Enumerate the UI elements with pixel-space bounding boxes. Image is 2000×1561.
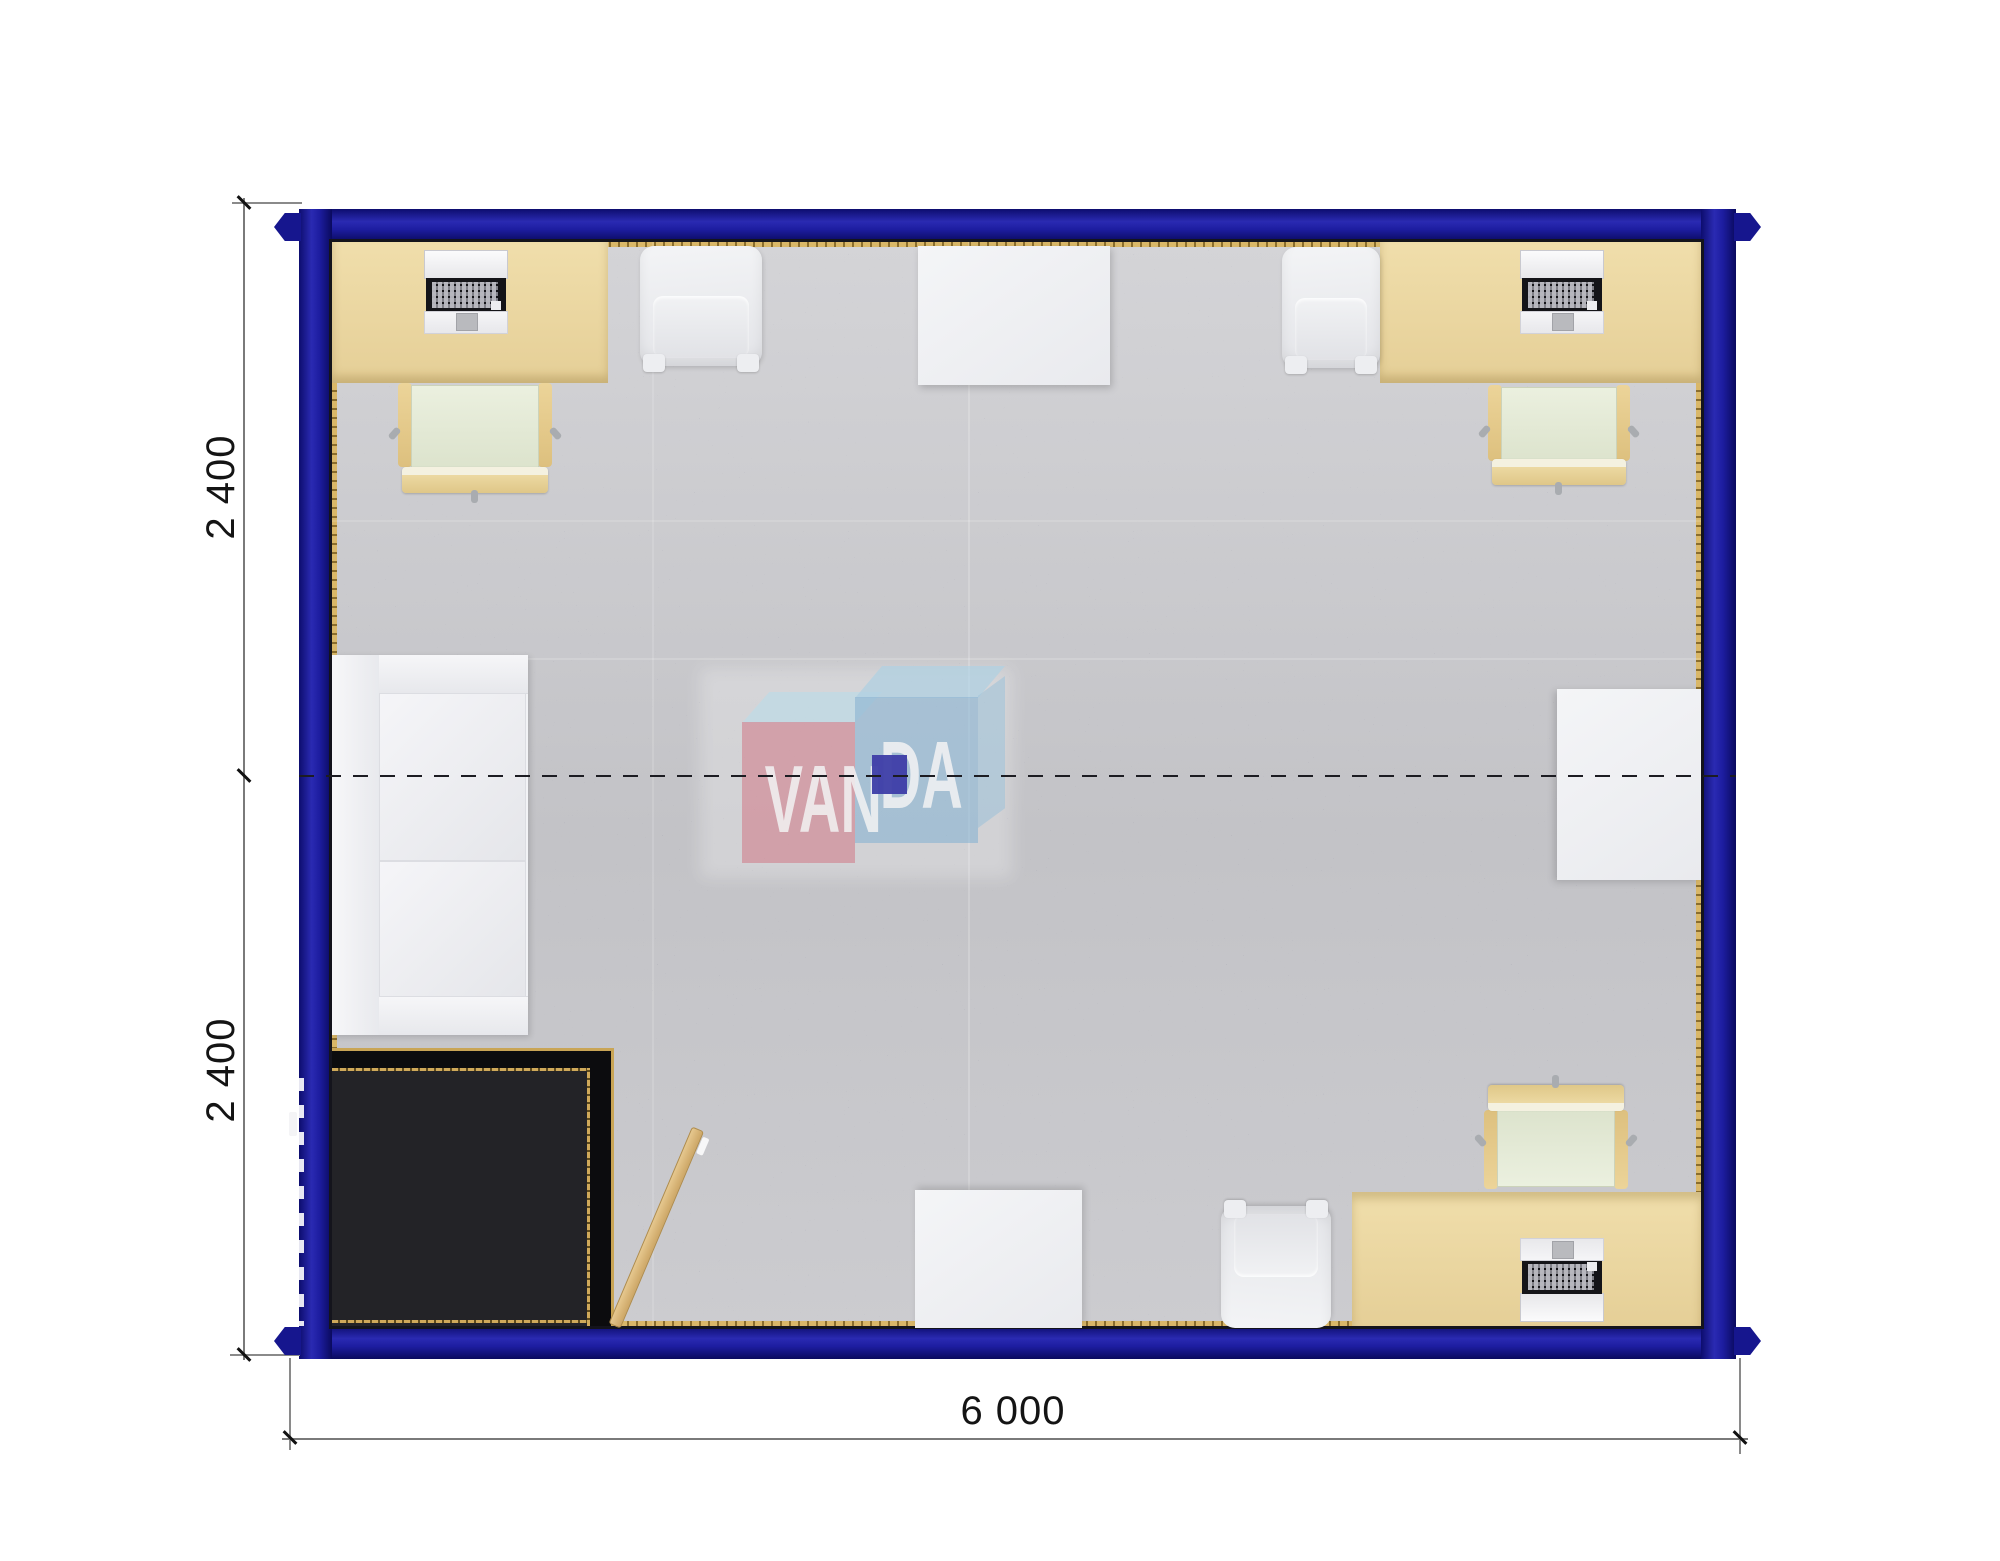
sofa xyxy=(332,655,528,1035)
carpet-seam xyxy=(332,658,1701,660)
keyboard xyxy=(1522,278,1602,313)
carpet-seam xyxy=(332,520,1701,522)
dimension-label-length: 6 000 xyxy=(913,1389,1113,1433)
office-chair-top-left xyxy=(398,383,552,493)
caster xyxy=(1552,1075,1559,1088)
table-bottom-center xyxy=(915,1190,1082,1328)
armchair-cushion xyxy=(1295,298,1367,360)
armrest xyxy=(538,383,552,467)
chair-seat xyxy=(1501,387,1617,469)
computer-base xyxy=(424,311,508,334)
corner-casting-bottom-right xyxy=(1734,1327,1761,1355)
table-right-wall xyxy=(1557,689,1701,880)
sofa-armrest-bottom xyxy=(379,996,528,1035)
armchair-bottom xyxy=(1221,1206,1331,1328)
sofa-cushion xyxy=(379,861,526,997)
chair-seat xyxy=(411,385,539,475)
keyboard-notch xyxy=(1587,301,1597,310)
corner-casting-top-right xyxy=(1734,213,1761,241)
armchair-top-left xyxy=(640,246,762,366)
touchpad xyxy=(1552,313,1574,331)
touchpad xyxy=(1552,1241,1574,1259)
desk-bottom-right xyxy=(1352,1192,1701,1326)
watermark-blue-cube-side xyxy=(978,676,1005,828)
computer-base xyxy=(1520,311,1604,334)
carpet-seam xyxy=(652,242,654,1326)
keyboard-notch xyxy=(1587,1262,1597,1271)
computer-icon xyxy=(424,250,508,334)
dimension-line-horizontal xyxy=(282,1438,1748,1440)
computer-icon xyxy=(1520,1238,1604,1322)
sofa-backrest xyxy=(332,655,381,1035)
armrest xyxy=(1614,1110,1628,1189)
exterior-door-handle xyxy=(289,1112,297,1136)
entrance-vestibule xyxy=(332,1048,614,1326)
dimension-label-width-top: 2 400 xyxy=(199,407,243,567)
caster xyxy=(1555,482,1562,495)
wall-right xyxy=(1701,209,1736,1359)
sofa-armrest-top xyxy=(379,655,528,694)
armrest-front xyxy=(737,354,759,372)
exterior-door-marking xyxy=(297,1078,304,1326)
vestibule-floor xyxy=(332,1071,587,1326)
armrest-front xyxy=(1355,356,1377,374)
armrest-front xyxy=(1285,356,1307,374)
corner-casting-top-left xyxy=(274,213,301,241)
table-top-center xyxy=(918,246,1110,385)
keyboard xyxy=(1522,1259,1602,1294)
armchair-cushion xyxy=(1234,1214,1318,1277)
armrest xyxy=(398,383,412,467)
armrest-front xyxy=(643,354,665,372)
armchair-top-right xyxy=(1282,247,1380,368)
vestibule-trim xyxy=(332,1068,590,1071)
floor-plan-canvas: 2 400 2 400 6 000 xyxy=(0,0,2000,1561)
wall-bottom xyxy=(299,1326,1736,1359)
keys xyxy=(432,282,498,308)
keys xyxy=(1528,282,1594,308)
armrest-front xyxy=(1224,1200,1246,1218)
armrest-front xyxy=(1306,1200,1328,1218)
touchpad xyxy=(456,313,478,331)
chair-seat xyxy=(1497,1102,1615,1187)
vestibule-trim xyxy=(332,1320,587,1323)
corner-casting-bottom-left xyxy=(274,1327,301,1355)
dimension-label-width-bottom: 2 400 xyxy=(199,990,243,1150)
monitor xyxy=(424,250,508,279)
armrest xyxy=(1484,1110,1498,1189)
vestibule-trim xyxy=(587,1068,590,1326)
keyboard xyxy=(426,278,506,313)
armrest xyxy=(1488,385,1502,461)
keyboard-notch xyxy=(491,301,501,310)
office-chair-bottom-right xyxy=(1484,1085,1628,1189)
armrest xyxy=(1616,385,1630,461)
caster xyxy=(471,490,478,503)
vestibule-trim xyxy=(332,1048,614,1051)
armchair-cushion xyxy=(653,296,749,358)
desk-top-left xyxy=(332,242,608,383)
module-centerline-dashed xyxy=(299,775,1736,777)
desk-top-right xyxy=(1380,242,1701,383)
keys xyxy=(1528,1264,1594,1290)
computer-icon xyxy=(1520,250,1604,334)
monitor xyxy=(1520,1293,1604,1322)
office-chair-top-right xyxy=(1488,385,1630,485)
sofa-cushion xyxy=(379,693,526,861)
vestibule-trim xyxy=(611,1048,614,1326)
monitor xyxy=(1520,250,1604,279)
wall-top xyxy=(299,209,1736,242)
watermark-text-van: VAN xyxy=(765,752,833,848)
chair-back xyxy=(1488,1085,1624,1111)
computer-base xyxy=(1520,1238,1604,1261)
